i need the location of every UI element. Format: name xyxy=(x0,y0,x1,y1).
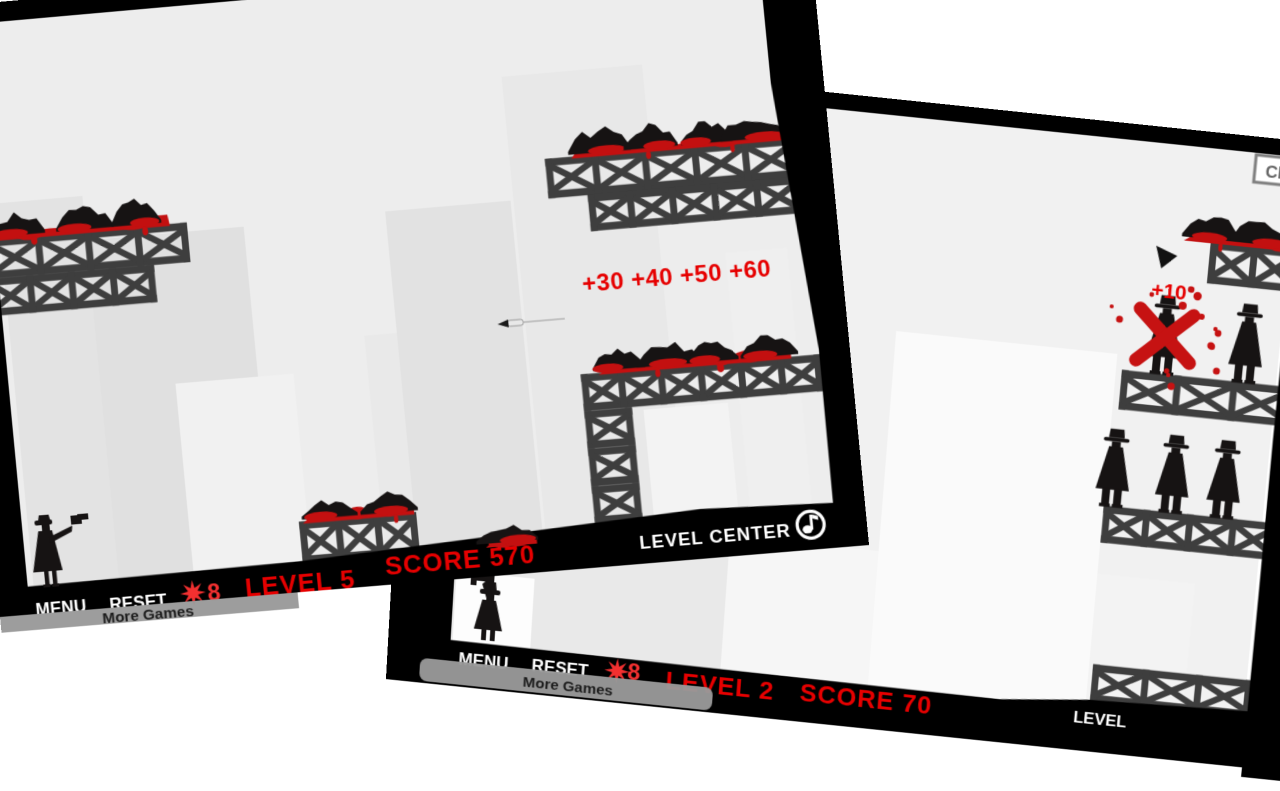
svg-text:CL: CL xyxy=(1265,161,1280,183)
svg-text:+10: +10 xyxy=(1150,279,1187,305)
